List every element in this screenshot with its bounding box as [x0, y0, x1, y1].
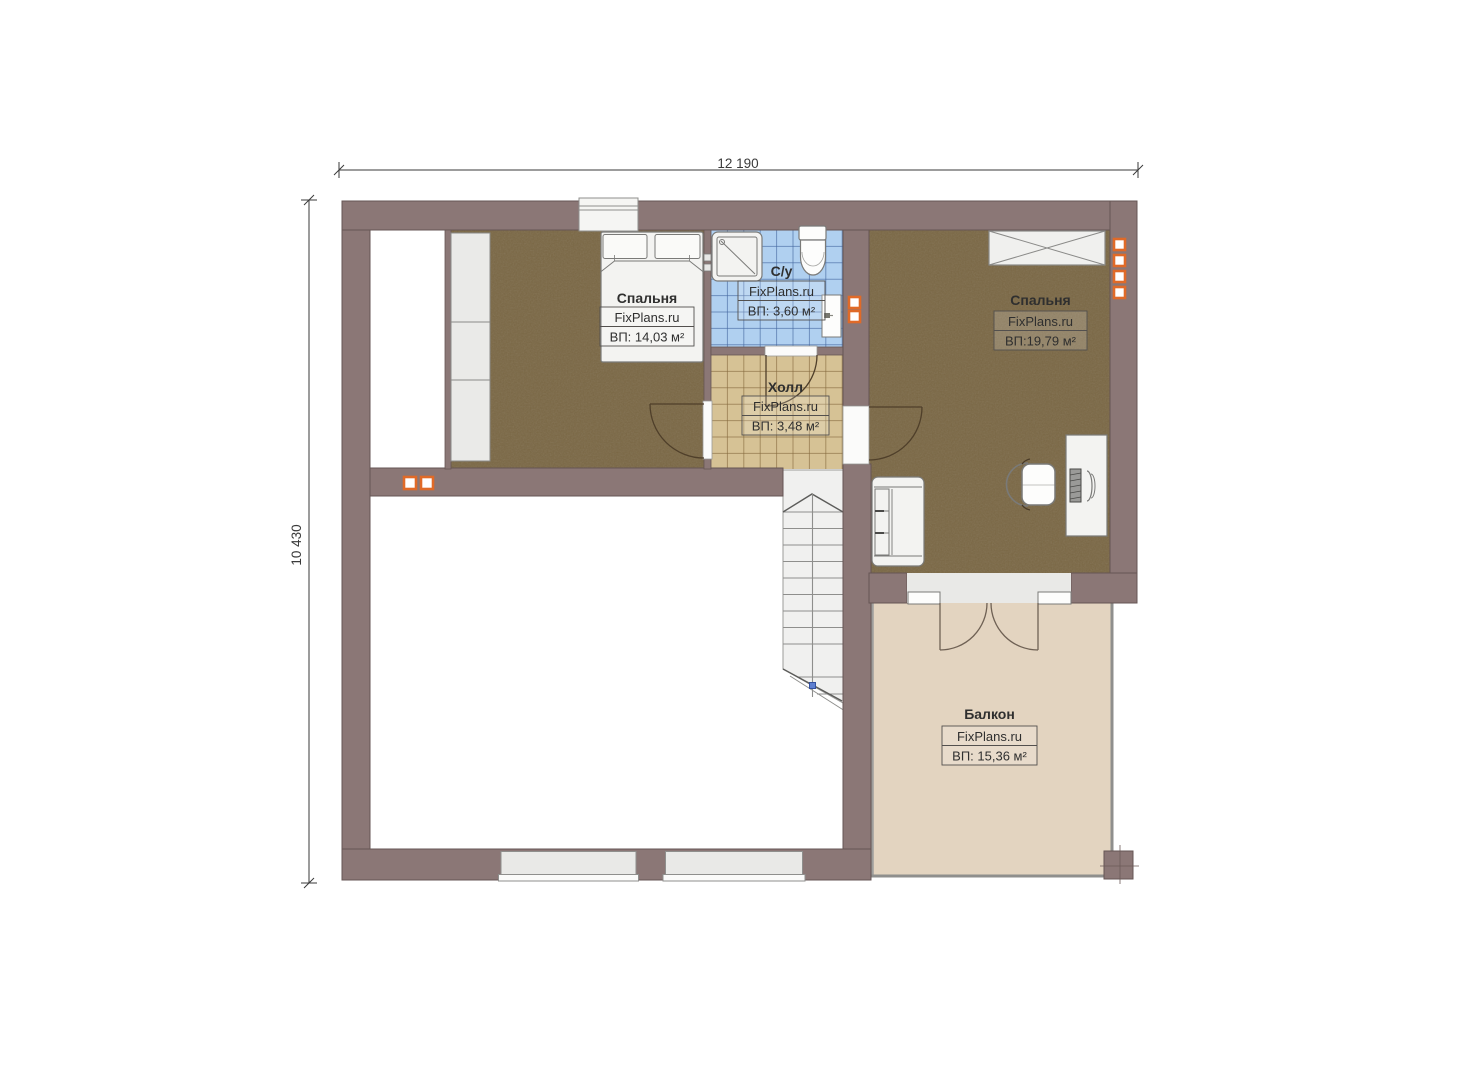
svg-text:FixPlans.ru: FixPlans.ru	[1008, 314, 1073, 329]
svg-text:ВП: 15,36 м²: ВП: 15,36 м²	[952, 749, 1027, 764]
svg-text:FixPlans.ru: FixPlans.ru	[753, 399, 818, 414]
svg-text:Балкон: Балкон	[964, 706, 1015, 722]
svg-text:FixPlans.ru: FixPlans.ru	[749, 284, 814, 299]
svg-text:FixPlans.ru: FixPlans.ru	[614, 310, 679, 325]
svg-text:Спальня: Спальня	[1010, 292, 1070, 308]
svg-text:Спальня: Спальня	[617, 290, 677, 306]
svg-text:Холл: Холл	[768, 379, 803, 395]
svg-text:ВП: 3,48 м²: ВП: 3,48 м²	[752, 419, 820, 434]
svg-text:ВП: 3,60 м²: ВП: 3,60 м²	[748, 304, 816, 319]
svg-text:12 190: 12 190	[717, 156, 758, 171]
svg-text:С/у: С/у	[771, 263, 793, 279]
svg-text:ВП:19,79 м²: ВП:19,79 м²	[1005, 334, 1077, 349]
svg-text:ВП: 14,03 м²: ВП: 14,03 м²	[610, 330, 685, 345]
svg-text:FixPlans.ru: FixPlans.ru	[957, 729, 1022, 744]
svg-text:10 430: 10 430	[289, 524, 304, 565]
